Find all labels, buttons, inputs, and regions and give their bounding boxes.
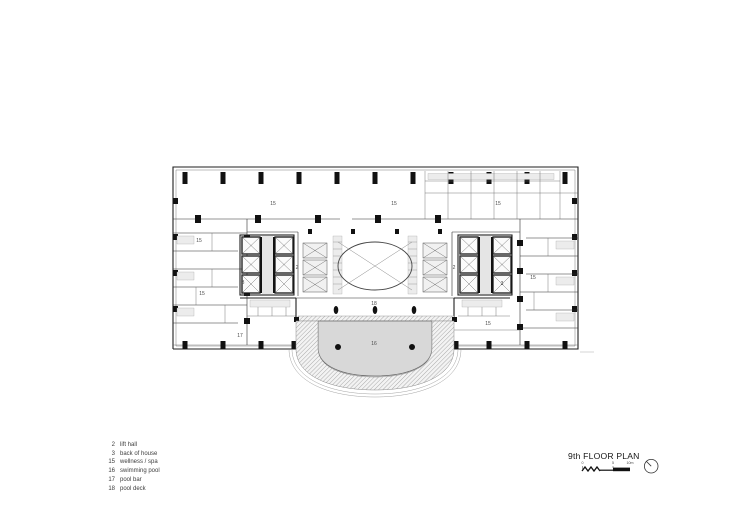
room-label-2: 2 — [296, 265, 299, 271]
scale-line — [600, 470, 613, 471]
scale-bar: 0 5 10m — [580, 460, 636, 476]
left-wing-rooms — [173, 219, 250, 345]
title-block: 9th FLOOR PLAN 0 5 10m — [566, 450, 676, 484]
legend-number: 16 — [104, 467, 115, 476]
lift-lobby-boxes — [303, 243, 447, 292]
legend-number: 2 — [104, 441, 115, 450]
room-label-15: 15 — [391, 201, 397, 207]
upper-right-rooms — [425, 171, 578, 219]
scale-zigzag — [582, 467, 600, 471]
room-label-15: 15 — [485, 321, 491, 327]
room-label-15: 15 — [196, 238, 202, 244]
right-wing-rooms — [517, 219, 578, 345]
scale-tick: 0 — [582, 461, 584, 465]
room-label-17: 17 — [237, 333, 243, 339]
pool-water — [318, 321, 432, 376]
room-label-15: 15 — [495, 201, 501, 207]
legend-item: 15 wellness / spa — [104, 458, 160, 467]
atrium-ellipse — [338, 242, 412, 290]
north-arrow-icon — [642, 457, 660, 475]
legend-label: pool deck — [120, 485, 146, 494]
legend: 2 lift hall 3 back of house 15 wellness … — [104, 441, 160, 493]
legend-item: 2 lift hall — [104, 441, 160, 450]
lift-core-left — [240, 235, 294, 295]
room-label-15: 15 — [530, 275, 536, 281]
room-label-16: 16 — [371, 341, 377, 347]
scale-tick: 5 — [612, 461, 614, 465]
spa-zone-wall — [173, 215, 578, 223]
legend-number: 17 — [104, 476, 115, 485]
scale-tick: 10m — [627, 461, 634, 465]
page: 151515151523231515171816 2 lift hall 3 b… — [0, 0, 750, 530]
room-label-15: 15 — [270, 201, 276, 207]
swimming-pool — [318, 321, 432, 376]
legend-number: 18 — [104, 485, 115, 494]
room-label-18: 18 — [371, 301, 377, 307]
legend-label: swimming pool — [120, 467, 160, 476]
legend-item: 18 pool deck — [104, 485, 160, 494]
legend-item: 3 back of house — [104, 450, 160, 459]
legend-item: 17 pool bar — [104, 476, 160, 485]
legend-label: pool bar — [120, 476, 142, 485]
legend-label: lift hall — [120, 441, 137, 450]
room-label-3: 3 — [242, 280, 245, 286]
scale-solid-bar — [613, 468, 630, 472]
legend-item: 16 swimming pool — [104, 467, 160, 476]
room-label-2: 2 — [453, 265, 456, 271]
room-label-3: 3 — [501, 281, 504, 287]
legend-label: wellness / spa — [120, 458, 158, 467]
legend-label: back of house — [120, 450, 157, 459]
legend-number: 15 — [104, 458, 115, 467]
room-label-15: 15 — [199, 291, 205, 297]
lift-core-right — [458, 235, 512, 295]
legend-number: 3 — [104, 450, 115, 459]
